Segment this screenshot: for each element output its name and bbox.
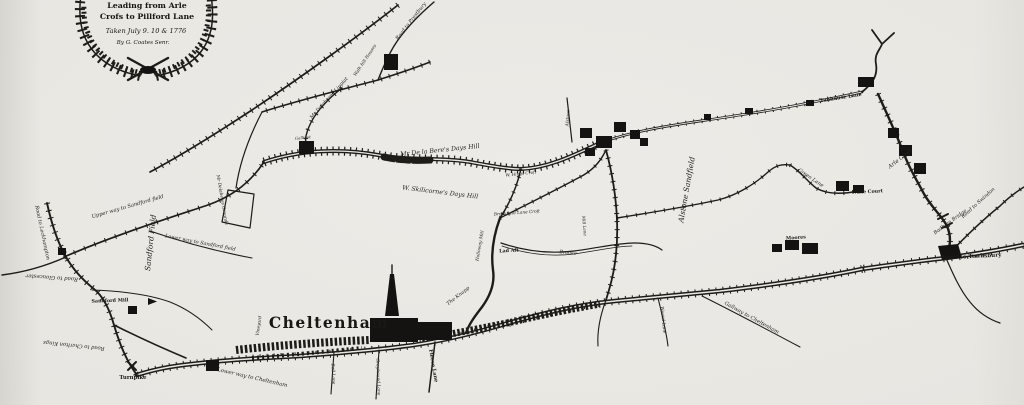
rect-shape [585,148,595,156]
rect-shape [128,306,137,314]
map-labels: Mr De la Bere's Days HillLears LaneW. Sk… [25,1,1002,396]
map-label: Lad Aft [499,247,519,254]
rect-shape [745,108,753,114]
path-shape [501,243,662,252]
path-shape [617,165,790,218]
map-label: Road to Charlton Kings [43,339,106,352]
map-label: Road to Swindon [960,187,997,221]
ellipse-shape [140,66,156,74]
map-label: Sandford Field [143,214,158,271]
rect-shape [704,114,711,120]
path-shape [150,5,398,172]
rect-shape [914,163,926,174]
map-label: Bell Lane [329,362,335,385]
path-shape [617,165,790,218]
cartouche-text: Leading from Arle Crofs to Pillford Lane… [100,1,194,46]
map-label: W. Higgs Croft [505,169,537,177]
map-label: Walk hill Houses [353,43,378,77]
cartouche-line-3: Taken July 9. 10 & 1776 [106,27,187,35]
map-label: Gallipot [295,134,312,141]
rect-shape [630,130,640,139]
map-canvas: Leading from Arle Crofs to Pillford Lane… [0,0,1024,405]
path-shape [606,150,617,300]
map-label: Greyhound Lane [374,358,380,396]
rect-shape [596,136,612,148]
path-shape [702,296,800,347]
map-label: Mr Delaberes Lippiat [308,75,350,121]
map-label: Brookfield Lane Croft [493,208,541,216]
map-label: Fleece Lane [427,349,439,383]
cartouche-line-1: Leading from Arle [107,1,186,10]
path-shape [150,5,398,172]
rect-shape [58,248,66,255]
map-label: Lower way to Cheltenham [216,367,288,389]
cartouche-line-2: Crofs to Pillford Lane [100,12,194,21]
path-shape [2,257,66,275]
map-label: Gallway to Cheltenham [723,301,780,336]
rect-shape [888,128,899,138]
rect-shape [384,54,398,70]
path-shape [598,300,606,346]
map-label: Road to Leckhampton [33,204,51,261]
map-label: Westal Lane [659,306,667,334]
rect-shape [858,77,874,87]
map-label: Sandford Mill [91,297,128,304]
map-label: Mill Lane [581,215,588,237]
town-label: Cheltenham [269,313,389,332]
rect-shape [299,141,314,154]
map-label: Road to Gloucester [25,272,79,282]
rect-shape [836,181,849,191]
rect-shape [772,244,782,252]
rect-shape [806,100,814,106]
cartouche-line-4: By G. Coates Senr. [116,40,170,46]
path-shape [384,157,430,160]
map-label: Turnpike [119,375,147,381]
path-shape [946,258,1000,323]
map-label: W. Skilicorne's Days Hill [402,184,479,200]
map-label: Brooke [558,249,577,257]
path-shape [236,340,370,350]
map-label: Green Lane [797,167,825,189]
map-label: Mr De la Bere's Days Hill [399,143,480,158]
map-label: Vineyard [256,316,264,337]
path-shape [236,112,262,188]
map-paper: Leading from Arle Crofs to Pillford Lane… [0,0,1024,405]
path-shape [92,290,212,330]
rect-shape [802,243,818,254]
map-label: Alstone [565,109,571,127]
polygon-shape [148,298,157,305]
path-shape [64,162,264,257]
rect-shape [580,128,592,138]
rect-shape [418,322,452,340]
rect-shape [640,138,648,146]
rect-shape [614,122,626,132]
map-label: The Knapp [446,285,472,307]
map-label: Arle Court [854,188,884,196]
map-label: Tanhouse Lane [820,92,862,105]
map-label: Holloway Mill [475,230,486,263]
map-label: Moores [786,234,807,241]
map-label: Alstone Sandfield [676,156,697,224]
map-label: Lower way to Sandford field [163,233,236,253]
polygon-shape [385,274,399,316]
